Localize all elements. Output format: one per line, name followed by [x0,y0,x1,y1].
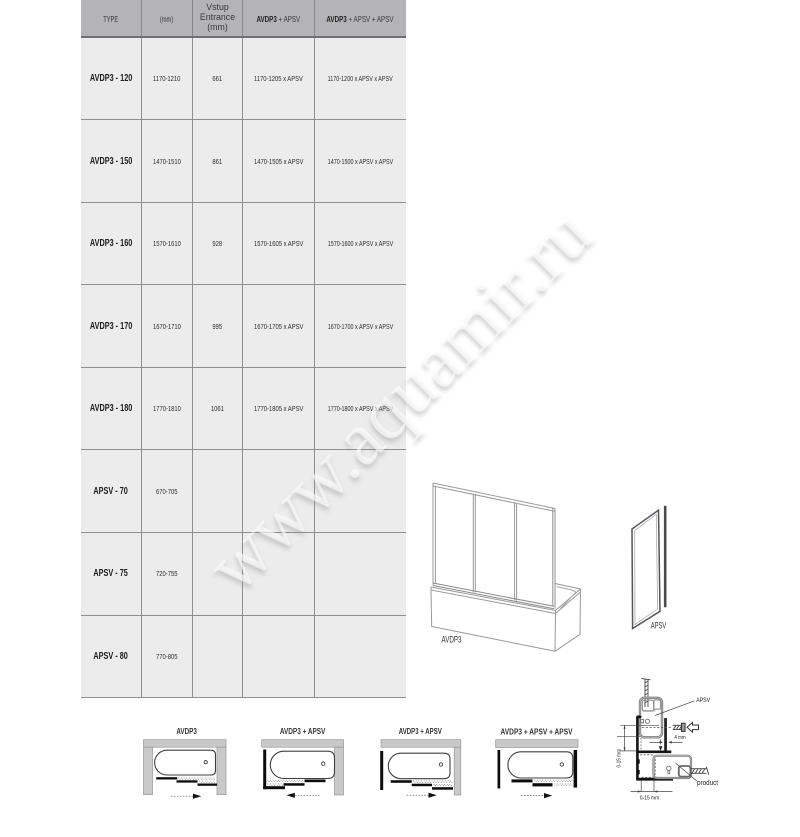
svg-text:AVDP3: AVDP3 [442,635,462,646]
svg-text:0-15 mm: 0-15 mm [640,796,660,801]
svg-text:AVDP3 + APSV: AVDP3 + APSV [399,727,443,736]
svg-text:AVDP3 + APSV + APSV: AVDP3 + APSV + APSV [501,728,574,737]
svg-text:product: product [697,778,719,787]
svg-text:4 mm: 4 mm [674,735,685,741]
svg-text:AVDP3 + APSV: AVDP3 + APSV [280,727,326,736]
svg-text:APSV: APSV [651,621,667,631]
svg-text:APSV: APSV [696,697,711,704]
svg-text:AVDP3: AVDP3 [176,727,197,736]
svg-text:0-15 mm: 0-15 mm [617,749,623,768]
